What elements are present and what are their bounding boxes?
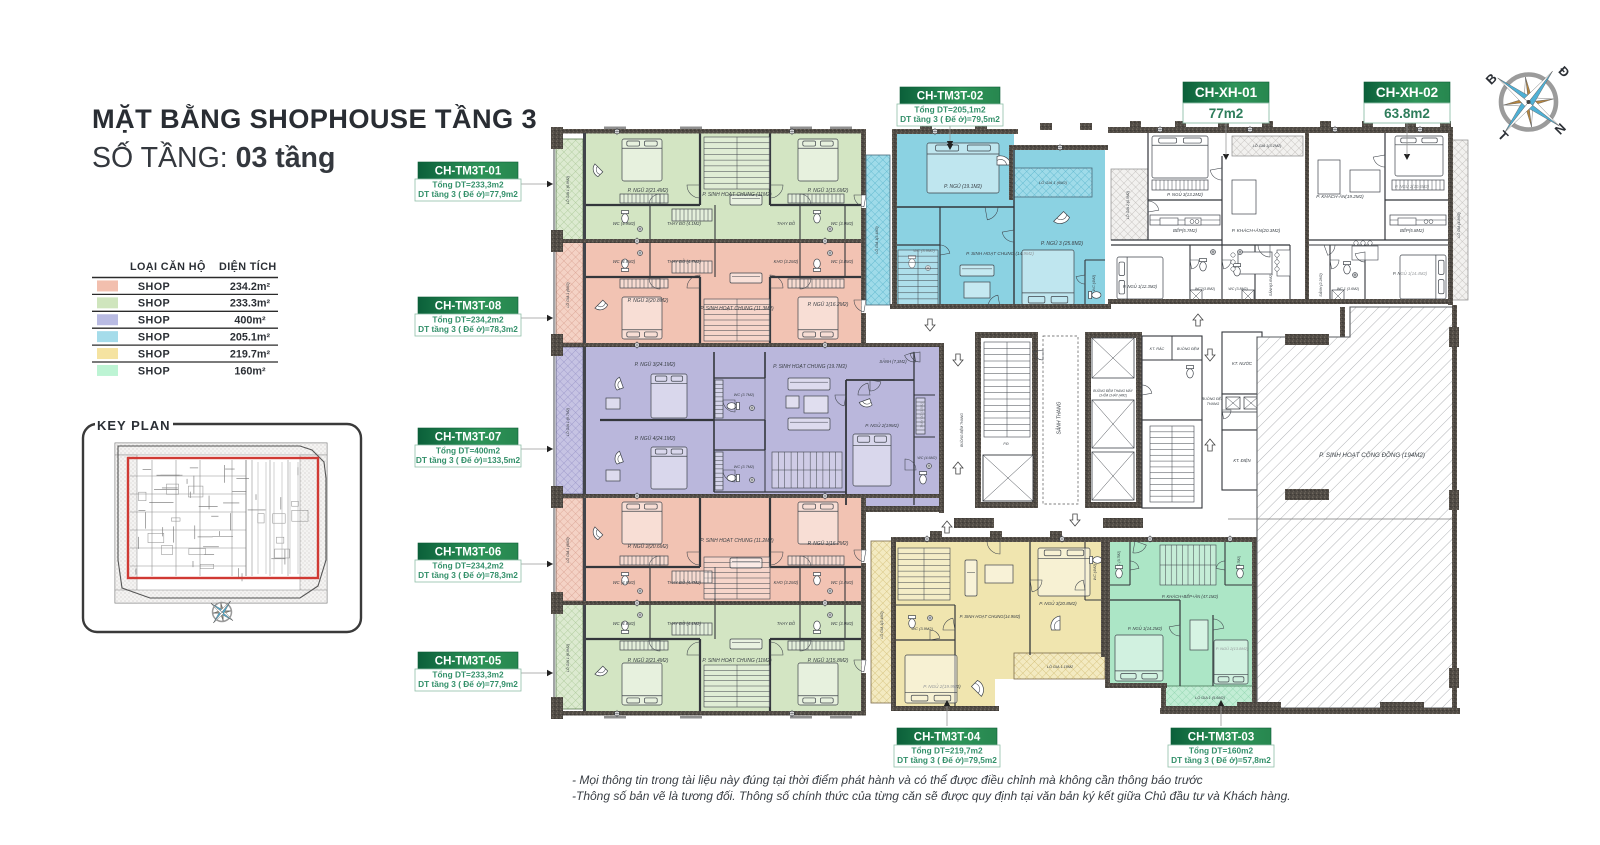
svg-text:CH-XH-01: CH-XH-01 (1195, 85, 1258, 100)
svg-text:KHO (3.2M2): KHO (3.2M2) (774, 580, 799, 585)
svg-text:LÔ GIA 1 (5.6M2): LÔ GIA 1 (5.6M2) (1195, 695, 1226, 700)
svg-text:DT tầng 3 ( Đế ở)=77,9m2: DT tầng 3 ( Đế ở)=77,9m2 (418, 679, 518, 689)
svg-text:P. NGỦ 1(12.3M2): P. NGỦ 1(12.3M2) (1123, 284, 1158, 289)
svg-text:P. NGỦ 3(13.2M2): P. NGỦ 3(13.2M2) (1167, 192, 1203, 197)
svg-text:P. NGỦ 1(16.2M2): P. NGỦ 1(16.2M2) (808, 540, 849, 547)
svg-text:WC (3.8M2): WC (3.8M2) (831, 259, 854, 264)
svg-text:P. NGỦ 3(24.1M2): P. NGỦ 3(24.1M2) (635, 361, 676, 368)
svg-text:P. KHÁCH+BẾP+ĂN (47.1M2): P. KHÁCH+BẾP+ĂN (47.1M2) (1162, 594, 1219, 599)
svg-text:CH-TM3T-03: CH-TM3T-03 (1188, 731, 1254, 743)
svg-text:WC (4.9M2): WC (4.9M2) (613, 221, 636, 226)
svg-text:THANG: THANG (1207, 402, 1220, 406)
svg-text:MẶT BẰNG SHOPHOUSE TẦNG 3: MẶT BẰNG SHOPHOUSE TẦNG 3 (92, 103, 537, 134)
svg-text:DT tầng 3 ( Đế ở)=78,3m2: DT tầng 3 ( Đế ở)=78,3m2 (418, 324, 518, 334)
svg-text:THAY ĐỒ (4.7M2): THAY ĐỒ (4.7M2) (667, 580, 701, 585)
svg-text:LÔ GIA 1 (6M2): LÔ GIA 1 (6M2) (1039, 180, 1068, 185)
svg-text:CH-TM3T-01: CH-TM3T-01 (435, 165, 502, 177)
svg-text:219.7m²: 219.7m² (230, 348, 271, 360)
svg-text:WC (4.6M2): WC (4.6M2) (613, 621, 636, 626)
svg-text:P. SINH HOẠT CHUNG (19.7M2): P. SINH HOẠT CHUNG (19.7M2) (773, 364, 847, 370)
svg-text:BẾP(5.7M2): BẾP(5.7M2) (1173, 228, 1197, 233)
svg-text:Tổng DT=233,3m2: Tổng DT=233,3m2 (432, 179, 504, 189)
svg-text:LÔ GIA 1(3.4M2): LÔ GIA 1(3.4M2) (879, 611, 884, 638)
svg-text:P. SINH HOẠT CHUNG (11M2): P. SINH HOẠT CHUNG (11M2) (702, 192, 772, 198)
svg-text:LÔ GIA (4.8M2): LÔ GIA (4.8M2) (1456, 212, 1461, 237)
svg-text:P. KHÁCH+ĂN(20.3M2): P. KHÁCH+ĂN(20.3M2) (1232, 227, 1281, 233)
svg-text:WC (4.6M2): WC (4.6M2) (917, 456, 936, 460)
svg-text:LÔ GIA 1 (6M2): LÔ GIA 1 (6M2) (565, 282, 570, 307)
svg-text:SHOP: SHOP (138, 365, 170, 377)
svg-text:WC (3.7M2): WC (3.7M2) (734, 465, 755, 469)
svg-text:WC (3.4M2): WC (3.4M2) (831, 580, 854, 585)
svg-text:Tổng DT=400m2: Tổng DT=400m2 (436, 445, 501, 455)
svg-text:WC (4.9M2): WC (4.9M2) (613, 259, 636, 264)
svg-text:P. SINH HOẠT CHUNG (11.3M2): P. SINH HOẠT CHUNG (11.3M2) (700, 306, 774, 312)
svg-text:P.Đ: P.Đ (1003, 442, 1009, 446)
svg-text:KHO (3.2M2): KHO (3.2M2) (774, 259, 799, 264)
svg-text:P. NGỦ 2(21.4M2): P. NGỦ 2(21.4M2) (628, 657, 669, 664)
svg-text:160m²: 160m² (234, 365, 266, 377)
svg-text:LÔ GIA 1(3.4M2): LÔ GIA 1(3.4M2) (874, 226, 879, 253)
svg-text:WC (4M2): WC (4M2) (1093, 564, 1097, 580)
svg-text:LÔ GIA 1 (6.9M2): LÔ GIA 1 (6.9M2) (565, 176, 570, 204)
svg-text:LÔ GIA 1 (6M2): LÔ GIA 1 (6M2) (565, 537, 570, 562)
svg-text:BUỒNG ĐỆM: BUỒNG ĐỆM (1177, 346, 1199, 351)
svg-text:Tổng DT=233,3m2: Tổng DT=233,3m2 (432, 669, 504, 679)
svg-text:63.8m2: 63.8m2 (1384, 106, 1430, 121)
svg-text:Tổng DT=234,2m2: Tổng DT=234,2m2 (432, 560, 504, 570)
svg-text:CH-TM3T-08: CH-TM3T-08 (435, 300, 502, 312)
svg-text:DIỆN TÍCH: DIỆN TÍCH (219, 260, 277, 273)
svg-text:CH-TM3T-06: CH-TM3T-06 (435, 546, 501, 558)
svg-text:SẢNH (2.2M2): SẢNH (2.2M2) (1318, 273, 1323, 296)
svg-text:KT. ĐIỆN: KT. ĐIỆN (1233, 458, 1251, 463)
svg-text:CH-TM3T-07: CH-TM3T-07 (435, 431, 501, 443)
svg-text:DT tầng 3 ( Đế ở)=79,5m2: DT tầng 3 ( Đế ở)=79,5m2 (900, 114, 1000, 124)
svg-text:KT. RÁC: KT. RÁC (1150, 347, 1165, 351)
svg-text:Tổng DT=219,7m2: Tổng DT=219,7m2 (911, 745, 983, 755)
svg-text:P. NGỦ 1(15.8M2): P. NGỦ 1(15.8M2) (808, 657, 849, 664)
svg-text:SHOP: SHOP (138, 298, 170, 310)
svg-text:233.3m²: 233.3m² (230, 298, 271, 310)
svg-text:SỐ TẦNG: 03 tầng: SỐ TẦNG: 03 tầng (92, 141, 335, 174)
svg-text:THAY ĐỒ: THAY ĐỒ (777, 621, 796, 626)
svg-text:WC (4.6M2): WC (4.6M2) (613, 580, 636, 585)
svg-text:LÔ GIA 1.18M2: LÔ GIA 1.18M2 (1047, 664, 1074, 669)
svg-text:Tổng DT=234,2m2: Tổng DT=234,2m2 (432, 314, 504, 324)
svg-text:BẾP(5.8M2): BẾP(5.8M2) (1400, 228, 1424, 233)
svg-text:LÔ GIA 2 (4.5M2): LÔ GIA 2 (4.5M2) (1125, 191, 1130, 219)
svg-text:BUỒNG ĐỆM: BUỒNG ĐỆM (1202, 396, 1224, 401)
svg-text:CHỮA CHÁY (4M2): CHỮA CHÁY (4M2) (1099, 393, 1127, 398)
svg-text:SHOP: SHOP (138, 281, 170, 293)
svg-text:P. NGỦ 2(20.8M2): P. NGỦ 2(20.8M2) (628, 297, 669, 304)
svg-text:BUỒNG ĐỆM THANG MÁY: BUỒNG ĐỆM THANG MÁY (1093, 388, 1133, 393)
svg-text:P. SINH HOẠT CHUNG (11.2M2): P. SINH HOẠT CHUNG (11.2M2) (700, 538, 774, 544)
svg-text:SẢNH THANG: SẢNH THANG (1056, 401, 1063, 434)
svg-text:P. NGỦ 3 (25.8M2): P. NGỦ 3 (25.8M2) (1041, 240, 1083, 247)
svg-text:P. NGỦ 2(21.4M2): P. NGỦ 2(21.4M2) (628, 187, 669, 194)
svg-text:77m2: 77m2 (1209, 106, 1244, 121)
svg-text:DT tầng 3 ( Đế ở)=79,5m2: DT tầng 3 ( Đế ở)=79,5m2 (897, 755, 997, 765)
svg-text:P. NGỦ 3(20.8M2): P. NGỦ 3(20.8M2) (1039, 600, 1077, 606)
svg-text:THAY ĐỒ (4.1M2): THAY ĐỒ (4.1M2) (667, 221, 701, 226)
svg-text:SẢNH(3.6M2): SẢNH(3.6M2) (1268, 274, 1273, 296)
svg-text:- Mọi thông tin trong tài liệu: - Mọi thông tin trong tài liệu này đúng … (572, 773, 1203, 787)
svg-text:THAY ĐỒ (4.7M2): THAY ĐỒ (4.7M2) (667, 259, 701, 264)
svg-text:SHOP: SHOP (138, 348, 170, 360)
svg-text:P. SINH HOẠT CỘNG ĐỒNG (194M2): P. SINH HOẠT CỘNG ĐỒNG (194M2) (1319, 452, 1425, 459)
svg-text:WC (3.7M2): WC (3.7M2) (734, 393, 755, 397)
svg-text:-Thông số bản vẽ là tương đối.: -Thông số bản vẽ là tương đối. Thông số … (572, 789, 1291, 803)
svg-text:P. NGỦ 1(16.2M2): P. NGỦ 1(16.2M2) (808, 301, 849, 308)
svg-text:Tổng DT=160m2: Tổng DT=160m2 (1189, 745, 1254, 755)
svg-text:P. SINH HOẠT CHUNG(14.9M2): P. SINH HOẠT CHUNG(14.9M2) (960, 614, 1021, 619)
svg-text:234.2m²: 234.2m² (230, 281, 271, 293)
svg-text:THAY ĐỒ: THAY ĐỒ (777, 221, 796, 226)
svg-text:400m²: 400m² (234, 315, 266, 327)
svg-text:LÔ GIA 1(3.2M2): LÔ GIA 1(3.2M2) (1253, 143, 1283, 148)
svg-text:BUỒNG ĐỆM THANG: BUỒNG ĐỆM THANG (959, 413, 964, 447)
svg-text:DT tầng 3 ( Đế ở)=78,3m2: DT tầng 3 ( Đế ở)=78,3m2 (418, 570, 518, 580)
svg-text:LÔ GIA 1 (6.9M2): LÔ GIA 1 (6.9M2) (565, 644, 570, 672)
svg-text:THAY ĐỒ (4.1M2): THAY ĐỒ (4.1M2) (667, 621, 701, 626)
svg-text:WC (3.9M2): WC (3.9M2) (831, 221, 854, 226)
svg-text:205.1m²: 205.1m² (230, 331, 271, 343)
svg-text:P. NGỦ 1(14.2M2): P. NGỦ 1(14.2M2) (1128, 626, 1163, 631)
svg-text:DT tầng 3 ( Đế ở)=133,5m2: DT tầng 3 ( Đế ở)=133,5m2 (416, 455, 521, 465)
svg-text:DT tầng 3 ( Đế ở)=77,9m2: DT tầng 3 ( Đế ở)=77,9m2 (418, 189, 518, 199)
svg-text:SHOP: SHOP (138, 315, 170, 327)
svg-text:P. SINH HOẠT CHUNG (11M2): P. SINH HOẠT CHUNG (11M2) (702, 658, 772, 664)
svg-text:P. NGỦ (19.1M2): P. NGỦ (19.1M2) (944, 183, 982, 190)
svg-text:Tổng DT=205,1m2: Tổng DT=205,1m2 (914, 104, 986, 114)
svg-text:KT. NƯỚC: KT. NƯỚC (1232, 361, 1253, 366)
svg-text:DT tầng 3 ( Đế ở)=57,8m2: DT tầng 3 ( Đế ở)=57,8m2 (1171, 755, 1271, 765)
svg-text:KEY PLAN: KEY PLAN (97, 418, 171, 433)
svg-text:WC (4M2): WC (4M2) (1092, 275, 1096, 291)
svg-text:WC (3.9M2): WC (3.9M2) (831, 621, 854, 626)
svg-text:SHOP: SHOP (138, 331, 170, 343)
svg-text:P. NGỦ 4(24.1M2): P. NGỦ 4(24.1M2) (635, 435, 676, 442)
svg-text:SẢNH (7,3M2): SẢNH (7,3M2) (879, 359, 907, 364)
svg-text:P. NGỦ 1(15.6M2): P. NGỦ 1(15.6M2) (808, 187, 849, 194)
svg-text:P. NGỦ 2(20.6M2): P. NGỦ 2(20.6M2) (628, 543, 669, 550)
svg-text:CH-TM3T-02: CH-TM3T-02 (917, 90, 983, 102)
svg-text:CH-XH-02: CH-XH-02 (1376, 85, 1438, 100)
svg-text:LÔ GIA 1 (9.7M2): LÔ GIA 1 (9.7M2) (565, 408, 570, 436)
svg-text:P. NGỦ 2(19M2): P. NGỦ 2(19M2) (865, 422, 899, 428)
svg-text:LOẠI CĂN HỘ: LOẠI CĂN HỘ (130, 260, 206, 273)
svg-text:CH-TM3T-04: CH-TM3T-04 (914, 731, 981, 743)
svg-text:CH-TM3T-05: CH-TM3T-05 (435, 655, 502, 667)
